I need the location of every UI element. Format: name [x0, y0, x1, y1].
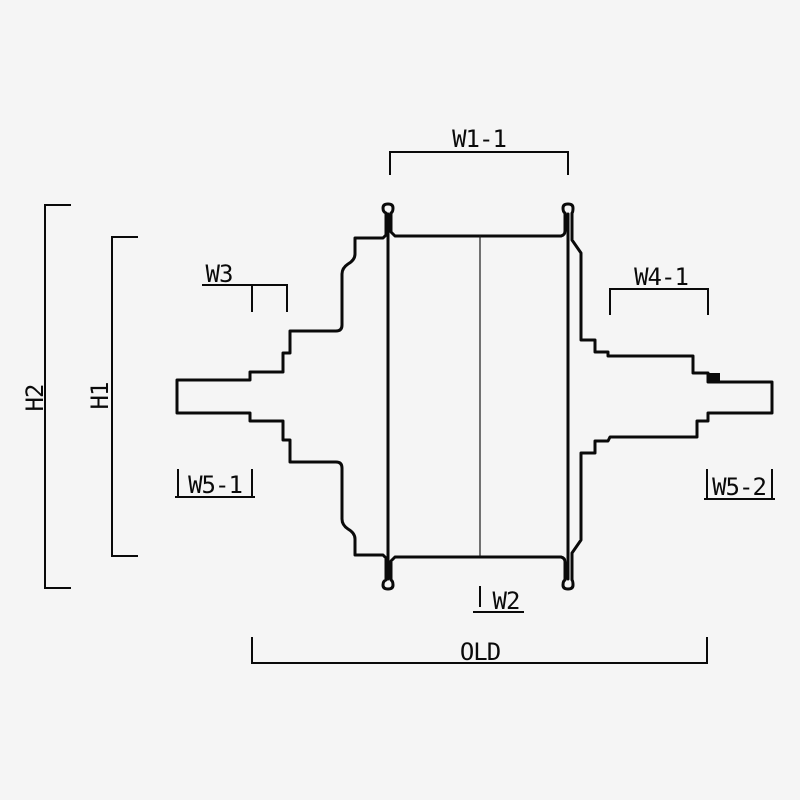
label-h1: H1 [86, 383, 114, 410]
label-w4-1: W4-1 [634, 263, 688, 291]
label-w3: W3 [206, 260, 233, 288]
label-h2: H2 [21, 385, 49, 412]
label-old: OLD [460, 638, 500, 666]
hub-drawing-svg: W1-1 H2 H1 W3 W4-1 W5-1 W5-2 W2 OLD [0, 0, 800, 800]
label-w5-2: W5-2 [712, 473, 766, 501]
label-w2: W2 [493, 587, 520, 615]
axle-keyway-block [708, 373, 720, 382]
drawing-background [0, 0, 800, 800]
label-w5-1: W5-1 [188, 471, 242, 499]
label-w1-1: W1-1 [452, 125, 506, 153]
drawing-canvas: W1-1 H2 H1 W3 W4-1 W5-1 W5-2 W2 OLD [0, 0, 800, 800]
